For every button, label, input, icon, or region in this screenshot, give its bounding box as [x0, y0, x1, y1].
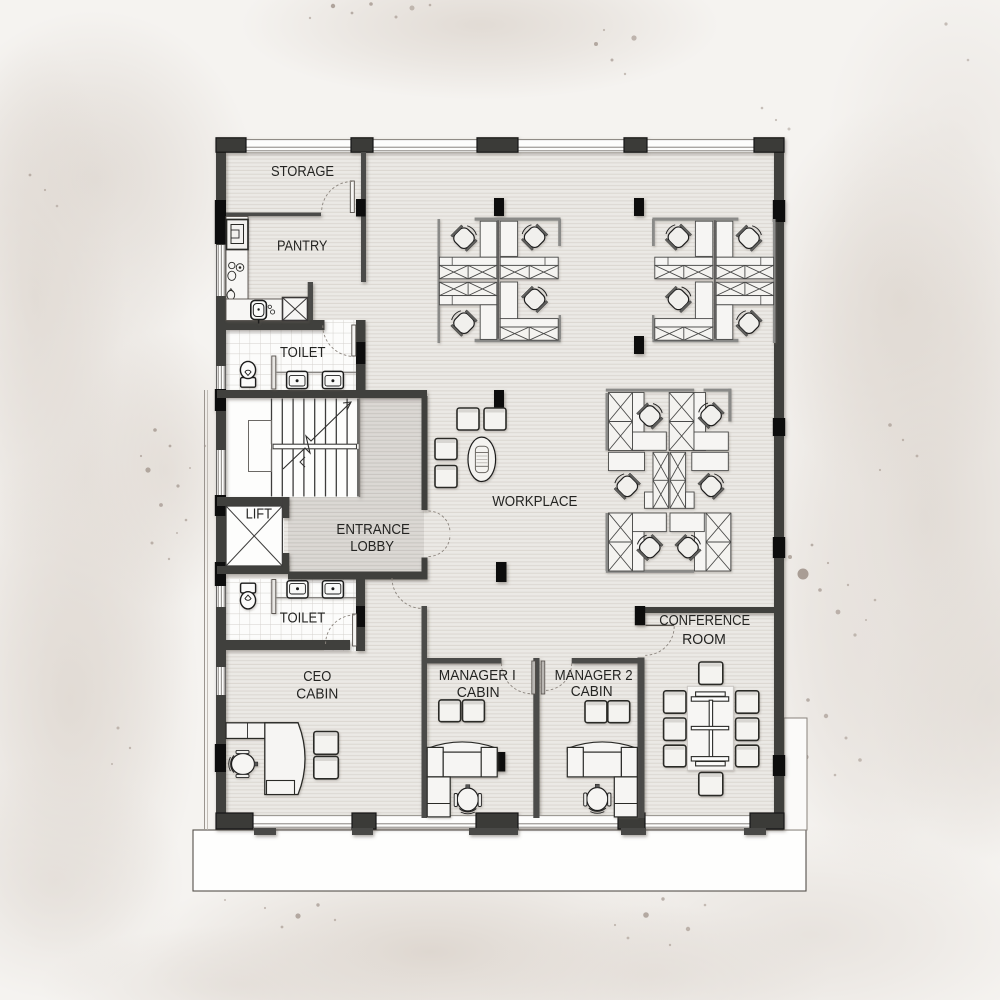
svg-text:ENTRANCE: ENTRANCE [336, 521, 410, 538]
svg-text:TOILET: TOILET [280, 344, 326, 361]
svg-text:MANAGER I: MANAGER I [439, 667, 516, 684]
svg-text:MANAGER 2: MANAGER 2 [555, 667, 633, 684]
svg-text:WORKPLACE: WORKPLACE [492, 493, 577, 510]
svg-text:PANTRY: PANTRY [277, 237, 328, 254]
svg-text:ROOM: ROOM [682, 631, 726, 648]
svg-text:CABIN: CABIN [571, 683, 613, 700]
svg-text:CEO: CEO [303, 668, 331, 685]
svg-text:STORAGE: STORAGE [271, 163, 334, 180]
svg-text:CONFERENCE: CONFERENCE [659, 612, 750, 629]
svg-text:CABIN: CABIN [457, 684, 500, 701]
svg-text:TOILET: TOILET [280, 610, 326, 627]
svg-text:LOBBY: LOBBY [350, 538, 394, 555]
svg-text:CABIN: CABIN [296, 686, 338, 703]
svg-text:LIFT: LIFT [246, 506, 272, 523]
